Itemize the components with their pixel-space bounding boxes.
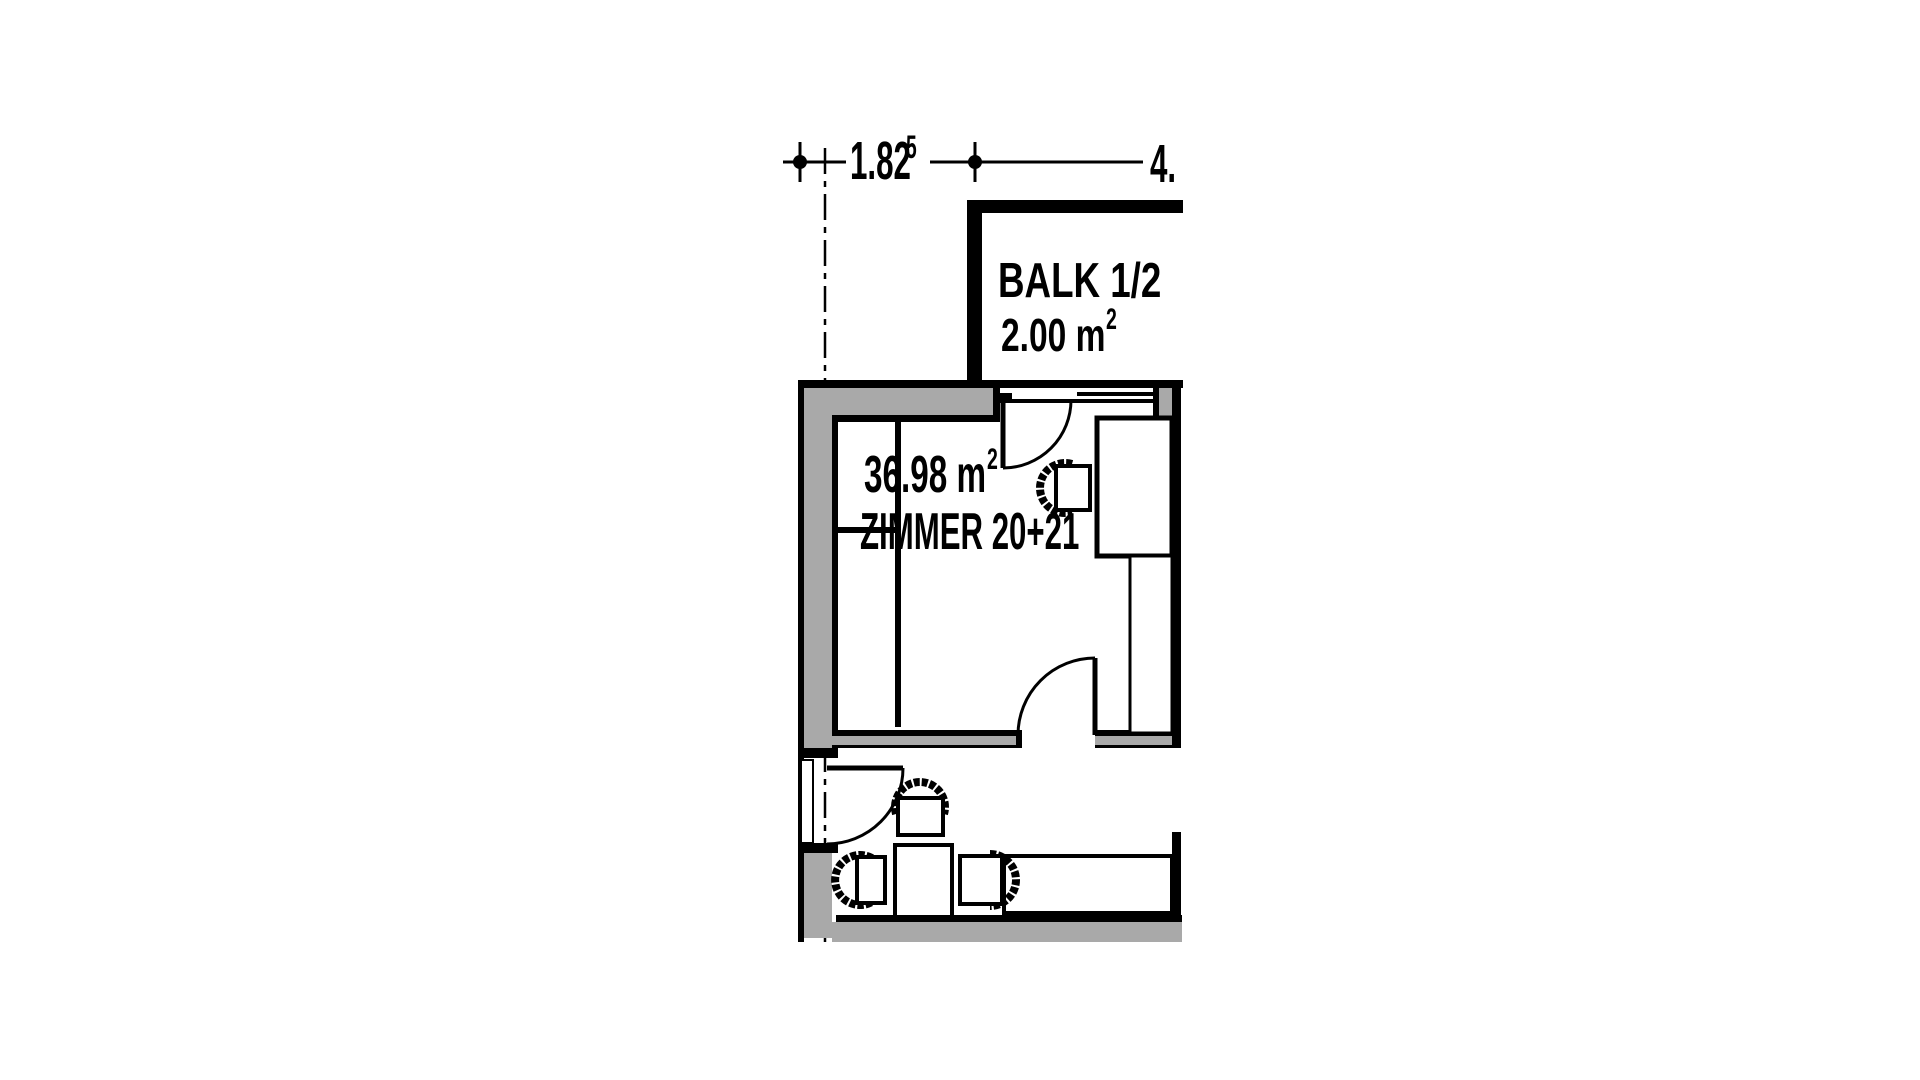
left-wall-inner-line: [832, 415, 838, 730]
door-swing-arc: [1018, 658, 1095, 735]
chair-north: [895, 782, 945, 835]
floor-plan-page: 1.82 5 4. BALK 1/2 2.00 m 2 36.98 m 2 ZI…: [0, 0, 1920, 1080]
door-jamb-cap: [798, 748, 838, 758]
wall-fill: [1095, 736, 1181, 745]
balcony-name-label: BALK 1/2: [998, 254, 1161, 308]
pier-edge: [1153, 388, 1159, 418]
wall-line: [832, 730, 1022, 736]
balcony-left-wall: [967, 200, 982, 382]
dimension-marker-dot: [793, 155, 807, 169]
dimension-chain: [783, 138, 1143, 186]
left-wall-fill: [804, 853, 832, 938]
chair-seat: [960, 856, 1002, 904]
balcony-top-wall: [967, 200, 1183, 213]
door-swing-arc: [1003, 400, 1071, 468]
wall-line: [832, 745, 1022, 748]
balcony-area-superscript: 2: [1106, 303, 1117, 336]
pier-edge: [993, 388, 1000, 422]
top-wall-outer-line: [798, 380, 1183, 388]
chair-west: [835, 855, 885, 905]
chair-seat: [857, 857, 885, 903]
bottom-wall: [832, 915, 1182, 942]
left-wall-outer-line: [798, 380, 804, 942]
left-wall: [798, 380, 838, 942]
wardrobe: [1130, 556, 1172, 733]
dimension-label-2: 4.: [1150, 134, 1176, 194]
floor-plan-drawing: 1.82 5 4. BALK 1/2 2.00 m 2 36.98 m 2 ZI…: [0, 0, 1920, 1080]
room-name-label: ZIMMER 20+21: [860, 503, 1079, 561]
bottom-wall-line: [836, 915, 1182, 922]
top-wall-fill: [804, 388, 1000, 415]
wall-line: [1095, 745, 1181, 748]
left-wall-fill: [804, 388, 832, 753]
counter: [1004, 856, 1172, 913]
desk: [1097, 418, 1172, 556]
wall-fill: [832, 736, 1022, 745]
table: [895, 845, 952, 917]
dimension-label-1-superscript: 5: [906, 129, 917, 165]
balcony-door: [1003, 400, 1071, 468]
door-threshold-line: [1000, 399, 1077, 403]
top-wall-inner-line: [832, 415, 1000, 422]
room-area-superscript: 2: [987, 443, 998, 476]
bottom-wall-fill: [832, 922, 1182, 942]
room-door: [1018, 658, 1095, 735]
dimension-label-1: 1.82: [850, 131, 911, 191]
balcony-area-label: 2.00 m: [1001, 310, 1106, 361]
dimension-marker-dot: [968, 155, 982, 169]
window-line-inner: [1077, 399, 1153, 403]
door-frame-panel: [801, 760, 813, 843]
chair-seat: [898, 798, 943, 835]
room-area-label: 36.98 m: [864, 446, 986, 504]
window-line-outer: [1077, 392, 1153, 396]
